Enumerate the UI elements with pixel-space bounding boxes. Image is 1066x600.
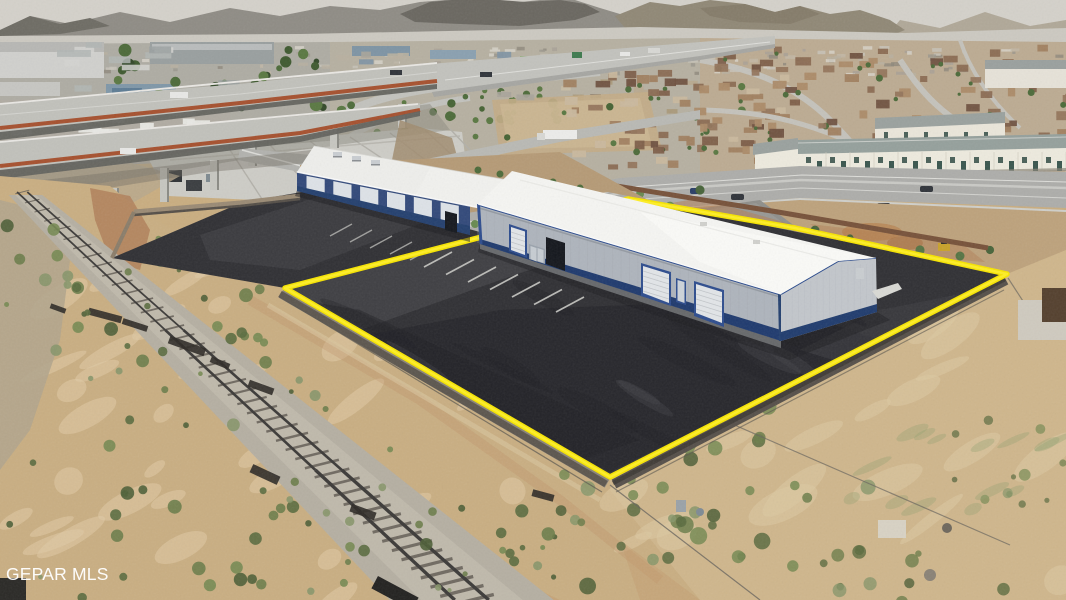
svg-text:GEPAR MLS: GEPAR MLS [6,564,109,584]
